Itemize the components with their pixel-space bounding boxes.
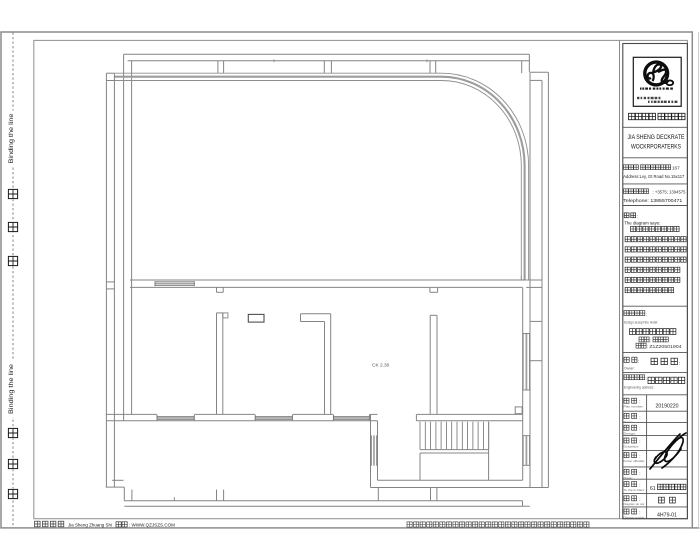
svg-text::: : bbox=[639, 483, 640, 488]
svg-text::: : bbox=[639, 426, 640, 431]
svg-text::: : bbox=[637, 214, 638, 219]
svg-text::: : bbox=[639, 399, 640, 404]
svg-text:Telephone: 13855700471: Telephone: 13855700471 bbox=[623, 198, 682, 204]
svg-text:Plan number:: Plan number: bbox=[624, 405, 644, 409]
svg-text::: : bbox=[646, 312, 647, 317]
svg-text:The diagram says:: The diagram says: bbox=[624, 221, 660, 226]
svg-text::: : bbox=[679, 361, 681, 367]
svg-text:: Z1Z20501904: : Z1Z20501904 bbox=[647, 344, 683, 349]
svg-text:Fix/on officially:: Fix/on officially: bbox=[624, 459, 646, 463]
svg-text:: +3575; 1394575: : +3575; 1394575 bbox=[653, 189, 687, 194]
svg-text:Engineering address:: Engineering address: bbox=[624, 386, 654, 390]
svg-text:Jia Sheng Zhuang Shi: Jia Sheng Zhuang Shi bbox=[68, 522, 112, 527]
svg-text:4H79-01: 4H79-01 bbox=[657, 512, 677, 518]
svg-text::: : bbox=[639, 510, 640, 515]
svg-text::: : bbox=[639, 470, 640, 475]
svg-text:Binding the line: Binding the line bbox=[8, 113, 15, 164]
svg-text:Graphics:: Graphics: bbox=[624, 444, 640, 448]
svg-text:Design:: Design: bbox=[624, 432, 637, 436]
svg-text:Item:: Item: bbox=[624, 420, 634, 424]
svg-text:JIA SHENG DECKRATE: JIA SHENG DECKRATE bbox=[628, 134, 685, 141]
svg-text:167: 167 bbox=[672, 165, 680, 170]
svg-text:61: 61 bbox=[650, 486, 656, 492]
svg-text:Date:: Date: bbox=[624, 476, 634, 480]
svg-text:WOCKRPORATERKS: WOCKRPORATERKS bbox=[631, 144, 681, 151]
svg-text:Owner:: Owner: bbox=[624, 367, 635, 371]
svg-text:Design accept the Hotel:: Design accept the Hotel: bbox=[624, 321, 658, 325]
svg-text::: : bbox=[639, 454, 640, 459]
svg-text:Binding the line: Binding the line bbox=[8, 363, 15, 414]
svg-text::: : bbox=[638, 360, 639, 365]
svg-text:Diagram number:: Diagram number: bbox=[624, 515, 646, 519]
svg-text:Tu the fu Nam:: Tu the fu Nam: bbox=[624, 488, 646, 492]
svg-text::: : bbox=[639, 439, 640, 444]
svg-text:Diagram do not:: Diagram do not: bbox=[624, 502, 646, 506]
svg-text::: : bbox=[646, 376, 647, 381]
svg-text::: : bbox=[639, 497, 640, 502]
svg-text:20190220: 20190220 bbox=[655, 403, 678, 409]
svg-text:CK 2.30: CK 2.30 bbox=[372, 363, 390, 369]
svg-text:: WWW.QZJSZS.COM: : WWW.QZJSZS.COM bbox=[129, 522, 175, 528]
svg-text:Address:Lvy, Gt Road No.15x117: Address:Lvy, Gt Road No.15x117 bbox=[623, 174, 685, 179]
svg-text::: : bbox=[650, 338, 651, 343]
svg-text::: : bbox=[639, 414, 640, 419]
